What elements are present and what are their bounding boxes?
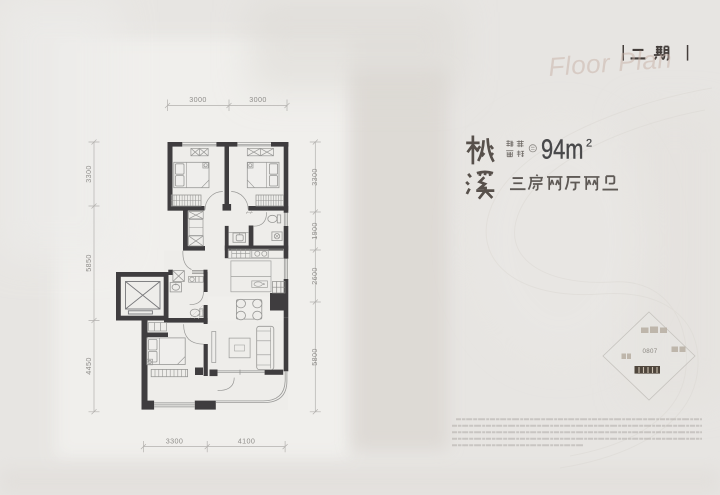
svg-text:94m: 94m bbox=[541, 133, 584, 164]
svg-text:4100: 4100 bbox=[238, 437, 256, 446]
svg-text:3000: 3000 bbox=[249, 95, 267, 104]
svg-text:5850: 5850 bbox=[84, 254, 93, 272]
svg-text:3300: 3300 bbox=[84, 165, 93, 183]
svg-text:2600: 2600 bbox=[310, 267, 319, 285]
svg-text:3300: 3300 bbox=[310, 168, 319, 186]
svg-text:1900: 1900 bbox=[310, 222, 319, 240]
svg-text:5800: 5800 bbox=[310, 348, 319, 366]
svg-text:2: 2 bbox=[586, 138, 592, 150]
svg-text:4450: 4450 bbox=[84, 357, 93, 375]
svg-text:0807: 0807 bbox=[643, 348, 658, 355]
svg-text:3300: 3300 bbox=[166, 437, 184, 446]
svg-text:3000: 3000 bbox=[189, 95, 207, 104]
